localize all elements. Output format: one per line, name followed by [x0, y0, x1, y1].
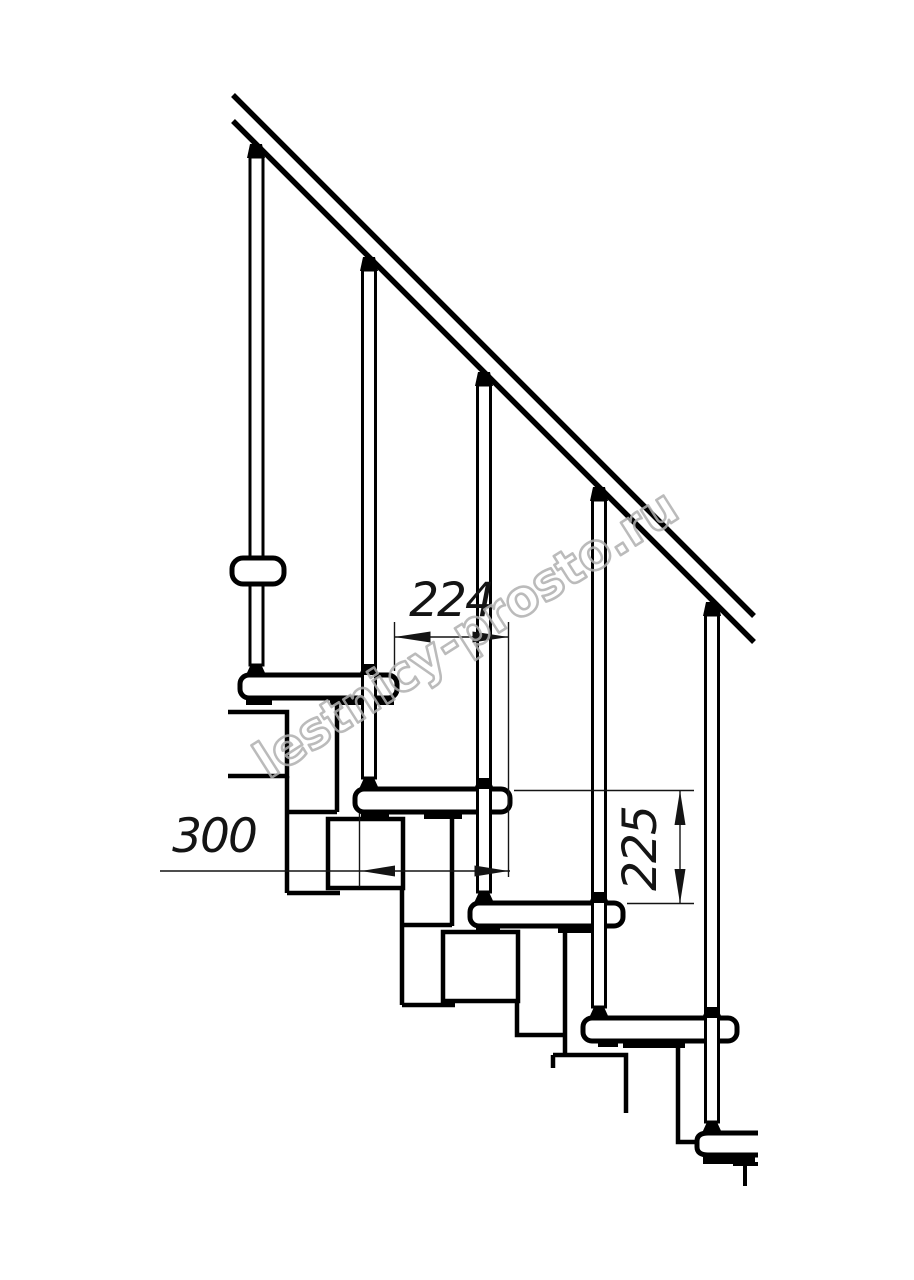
plate	[361, 811, 389, 819]
plate	[424, 811, 462, 819]
dimension-label-300: 300	[172, 809, 256, 864]
plate	[623, 1040, 685, 1048]
baluster-5	[706, 615, 719, 1122]
module-box-1	[328, 819, 403, 888]
dimension-label-225: 225	[613, 807, 668, 891]
landing-bracket	[232, 558, 284, 584]
plate	[703, 1155, 733, 1164]
plate	[246, 697, 272, 705]
plate	[598, 1040, 618, 1047]
technical-drawing-page: 224 300 225 lestnicy-prosto.ru	[0, 0, 914, 1280]
plate	[476, 925, 500, 933]
staircase-side-view-drawing: 224 300 225 lestnicy-prosto.ru	[0, 0, 914, 1280]
module-box-2	[443, 932, 518, 1001]
baluster-1	[250, 157, 263, 665]
fragment-tread	[697, 1133, 758, 1155]
